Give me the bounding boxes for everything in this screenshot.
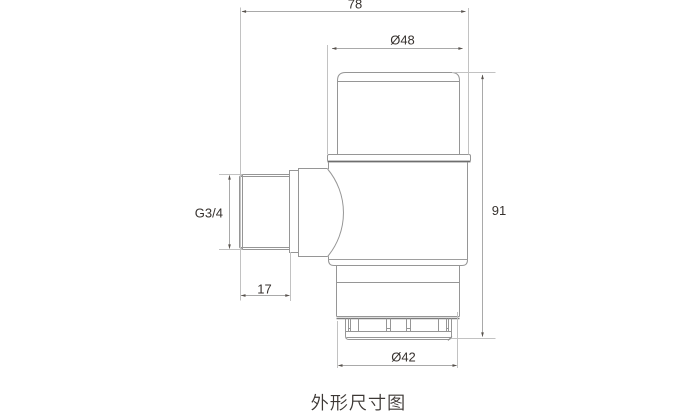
svg-text:17: 17 [257,282,271,297]
svg-text:Ø48: Ø48 [390,33,415,48]
svg-text:Ø42: Ø42 [391,350,416,365]
svg-text:91: 91 [492,203,506,218]
svg-text:78: 78 [348,0,362,12]
svg-text:G3/4: G3/4 [195,206,223,221]
